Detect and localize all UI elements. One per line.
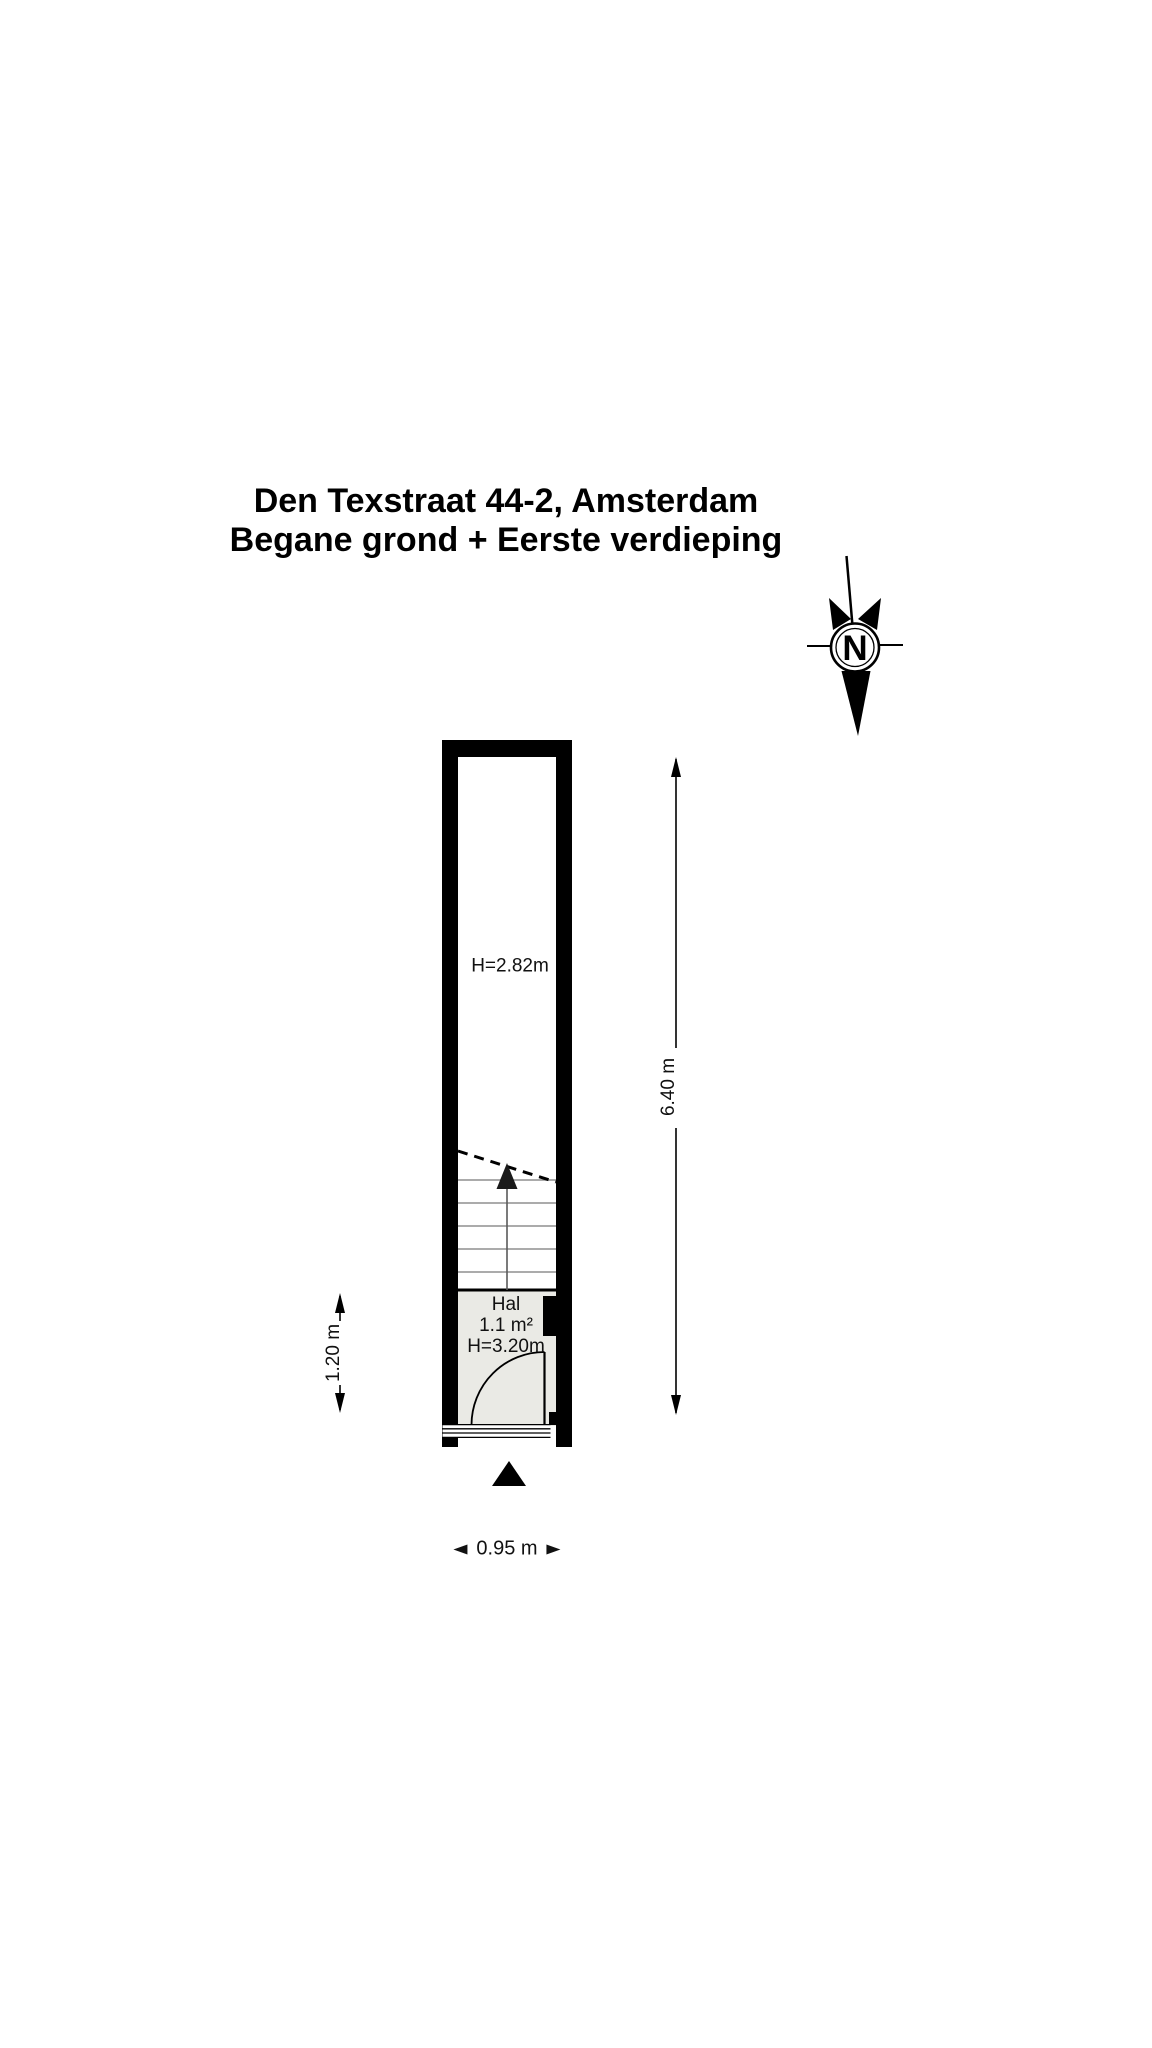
upper-room-height-label: H=2.82m [471,956,549,977]
staircase [458,1151,556,1290]
compass-north-label: N [842,629,867,668]
hal-depth-dimension-label: 1.20 m [323,1324,345,1382]
compass-north-icon: N [807,556,903,736]
compass-tail [842,671,871,736]
floorplan-page: Den Texstraat 44-2, Amsterdam Begane gro… [0,0,1152,2048]
wall-left [442,740,458,1447]
dimension-arrow-up-icon [335,1293,345,1313]
dimension-arrow-down-icon [335,1393,345,1413]
door-sill-body [443,1424,551,1438]
dimension-arrow-up-icon [671,757,681,777]
dimension-arrow-right-icon [547,1544,561,1554]
entrance-arrow-icon [492,1461,526,1486]
stair-direction-arrow-icon [497,1163,518,1189]
dimension-arrow-down-icon [671,1395,681,1415]
hal-area-label: 1.1 m² [467,1315,545,1336]
hal-name-label: Hal [467,1294,545,1315]
overall-width-dimension: 0.95 m [453,1538,560,1561]
wall-right [556,740,572,1447]
overall-width-dimension-label: 0.95 m [476,1538,537,1561]
floorplan-drawing: N [0,0,1152,2048]
wall-pier [543,1296,556,1336]
dimension-arrow-left-icon [453,1544,467,1554]
hal-label-block: Hal 1.1 m² H=3.20m [467,1294,545,1357]
door-sill [443,1424,551,1438]
wall-top [442,740,572,757]
door-jamb-stub [549,1412,565,1425]
hal-height-label: H=3.20m [467,1336,545,1357]
overall-depth-dimension-label: 6.40 m [658,1058,680,1116]
